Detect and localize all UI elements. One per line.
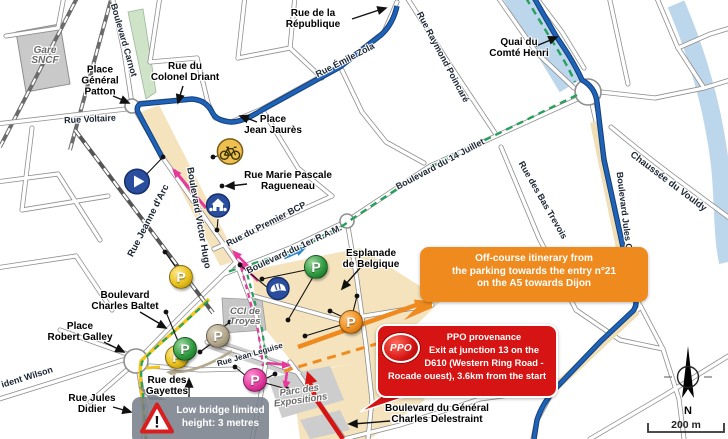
ppo-badge-icon: PPO bbox=[382, 333, 420, 363]
bicycle-icon bbox=[216, 138, 244, 171]
parking-icon-orange: P bbox=[339, 310, 363, 334]
street-label-republique: Rue de laRépublique bbox=[286, 8, 340, 30]
cci-troyes-label: CCI deTroyes bbox=[230, 307, 261, 327]
warning-triangle-icon: ! bbox=[139, 402, 175, 439]
off-course-callout: Off-course itinerary from the parking to… bbox=[420, 247, 648, 302]
scale-label: 200 m bbox=[671, 419, 701, 431]
street-label-ragueneau: Rue Marie PascaleRagueneau bbox=[244, 170, 332, 192]
street-label-delestraint: Boulevard du GénéralCharles Delestraint bbox=[385, 403, 489, 425]
parking-icon-magenta: P bbox=[243, 368, 267, 392]
place-robert-galley-label: PlaceRobert Galley bbox=[47, 321, 112, 343]
street-label-baltet: BoulevardCharles Baltet bbox=[91, 290, 158, 312]
parking-icon-green: P bbox=[304, 255, 328, 279]
parking-icon-green-galley: P bbox=[173, 337, 197, 361]
place-jean-jaures-label: PlaceJean Jaurès bbox=[244, 114, 302, 136]
parking-icon-yellow: P bbox=[169, 265, 193, 289]
street-label-quai-comte-henri: Quai duComté Henri bbox=[489, 37, 548, 59]
street-label-driant: Rue duColonel Driant bbox=[151, 61, 219, 83]
svg-text:!: ! bbox=[154, 413, 160, 432]
start-play-icon bbox=[124, 168, 151, 200]
race-village-icon bbox=[206, 193, 231, 223]
place-patton-label: PlaceGénéralPatton bbox=[81, 65, 118, 98]
gare-sncf-label: GareSNCF bbox=[31, 46, 58, 66]
esplanade-belgique-label: Esplanadede Belgique bbox=[343, 248, 400, 270]
map-stage: GareSNCF Boulevard Carnot Rue Voltaire P… bbox=[0, 0, 728, 439]
street-label-gayettes: Rue desGayettes bbox=[146, 375, 188, 397]
parking-icon-tan: P bbox=[206, 324, 230, 348]
helmet-icon bbox=[266, 277, 290, 306]
street-label-jules-didier: Rue JulesDidier bbox=[68, 393, 115, 415]
north-label: N bbox=[684, 405, 692, 417]
